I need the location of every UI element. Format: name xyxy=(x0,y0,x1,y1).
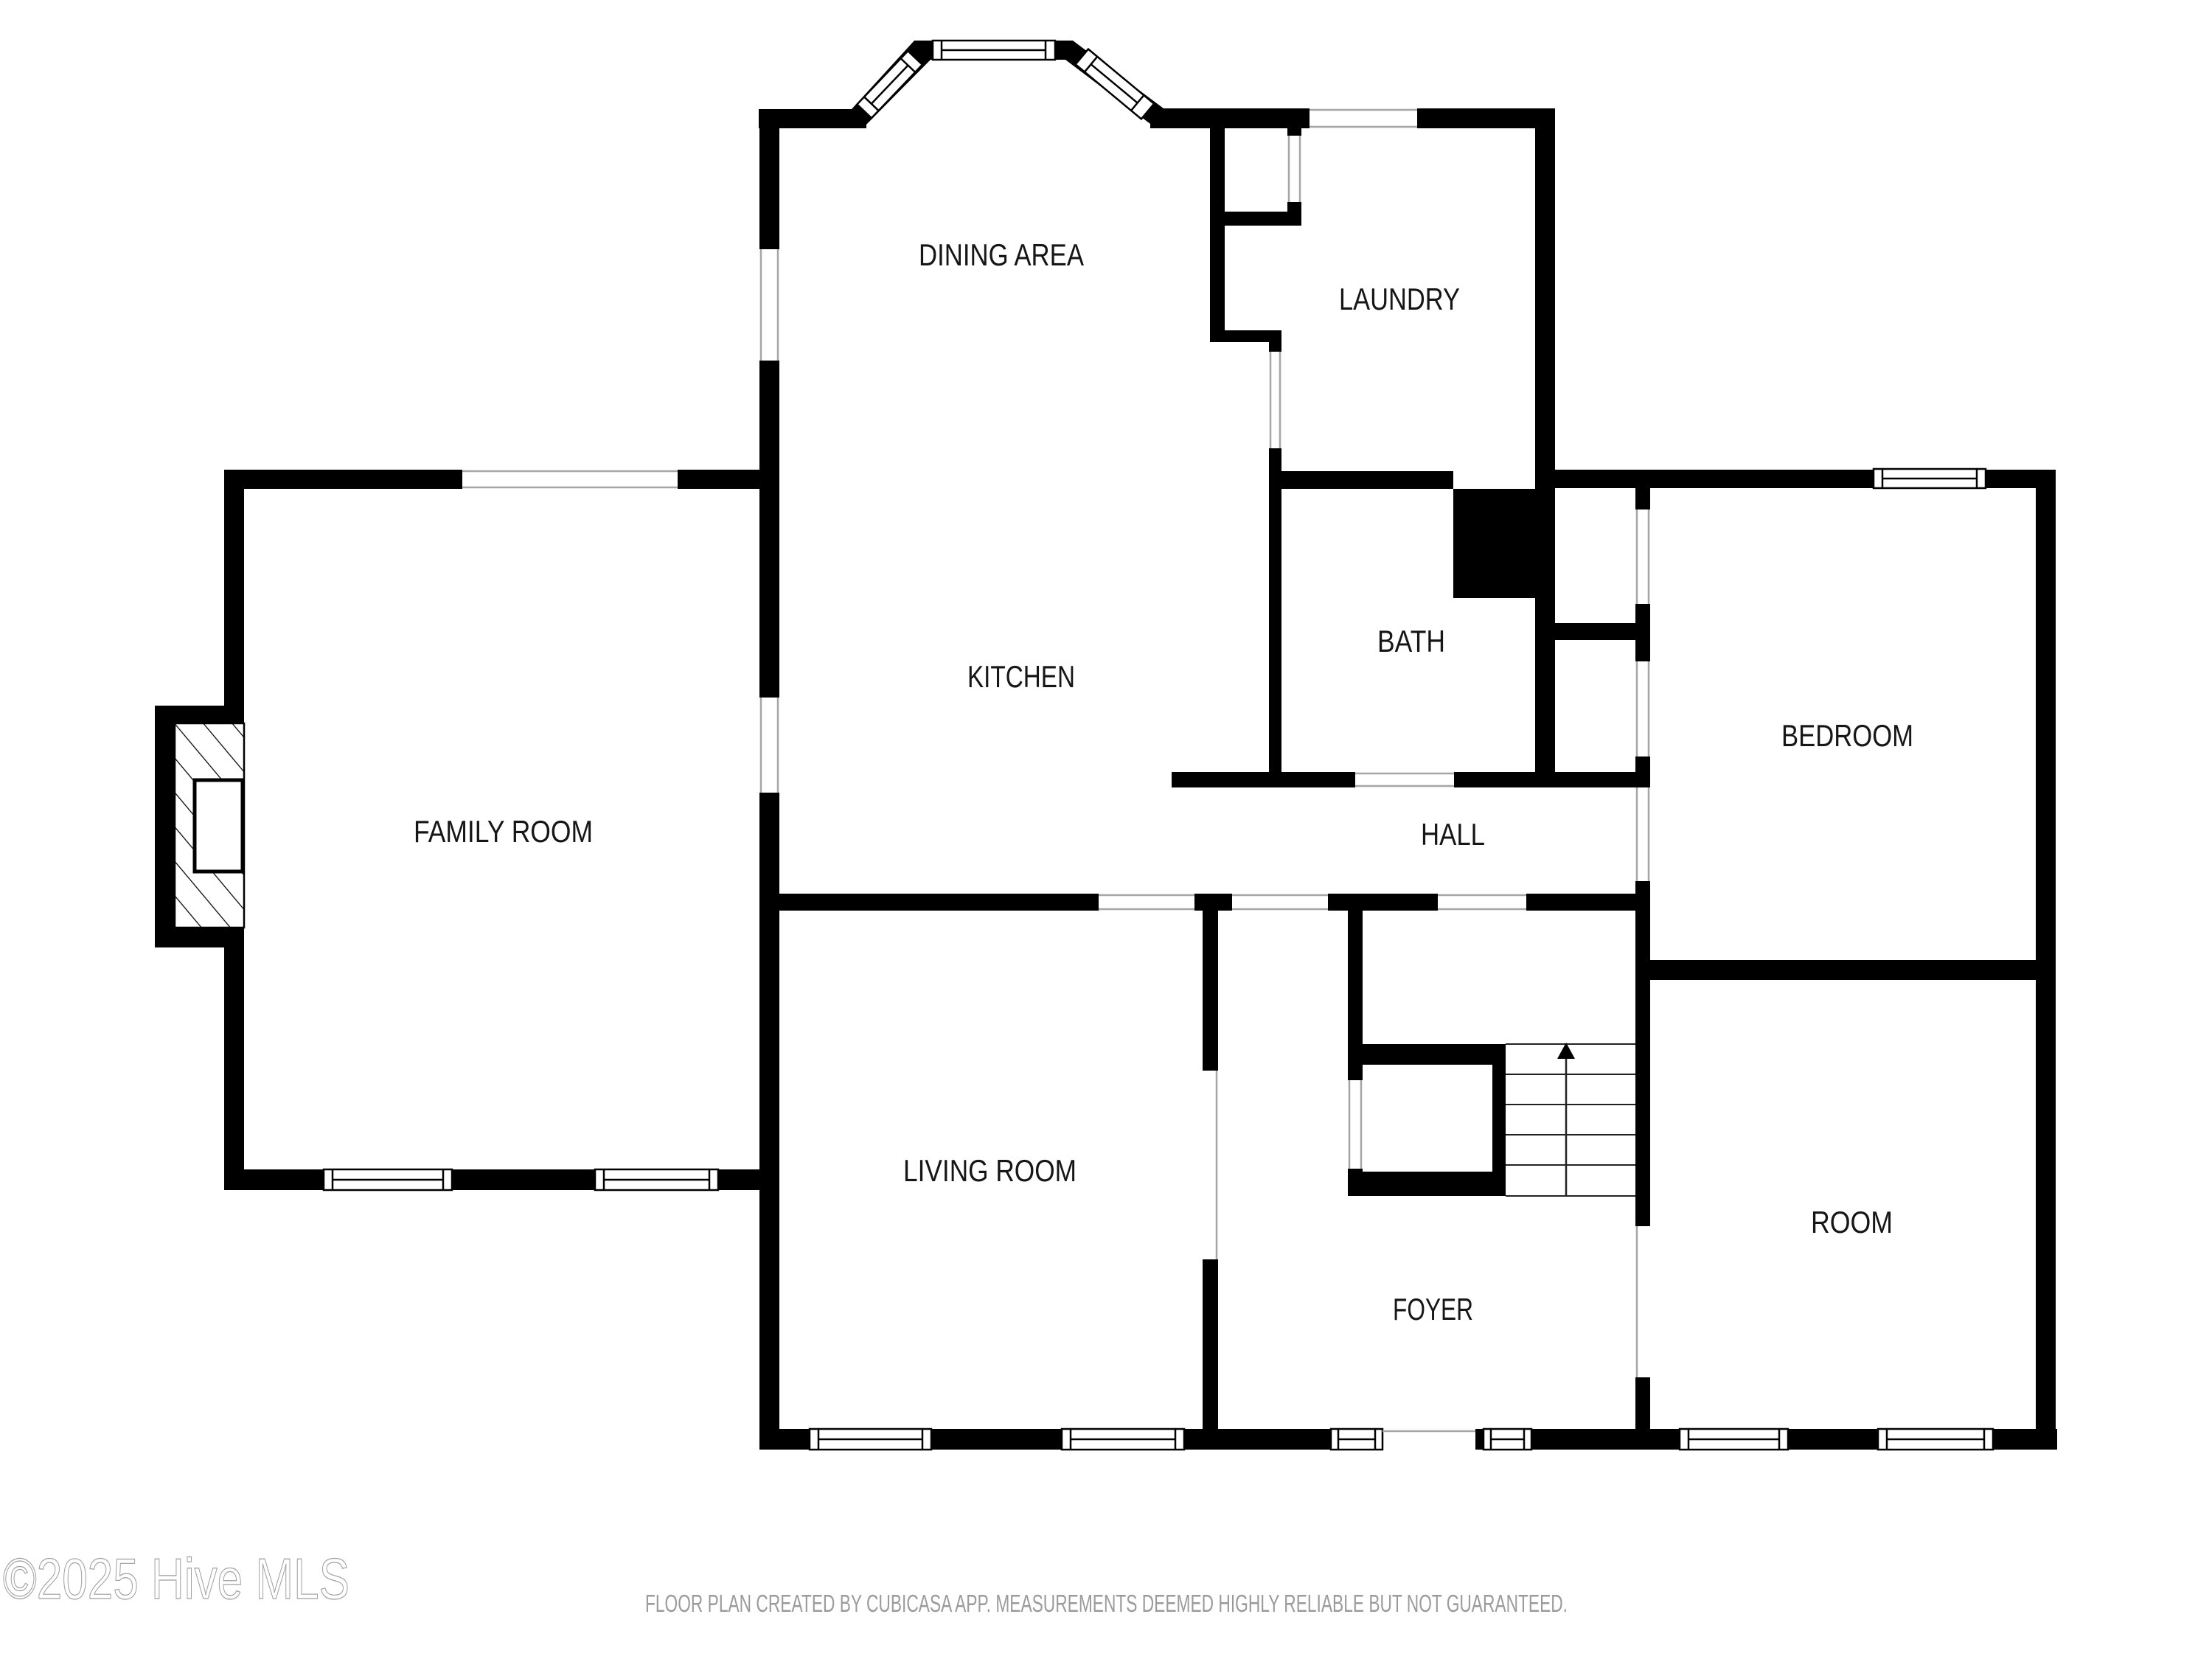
svg-text:BATH: BATH xyxy=(1377,624,1445,658)
svg-text:LIVING ROOM: LIVING ROOM xyxy=(903,1153,1077,1188)
svg-text:BEDROOM: BEDROOM xyxy=(1781,718,1913,753)
svg-text:KITCHEN: KITCHEN xyxy=(967,659,1075,694)
svg-text:FOYER: FOYER xyxy=(1393,1292,1473,1326)
svg-text:LAUNDRY: LAUNDRY xyxy=(1339,282,1460,316)
svg-text:FAMILY ROOM: FAMILY ROOM xyxy=(414,814,593,849)
svg-text:DINING AREA: DINING AREA xyxy=(919,237,1084,272)
svg-text:HALL: HALL xyxy=(1421,817,1485,852)
svg-text:©2025 Hive MLS: ©2025 Hive MLS xyxy=(3,1546,349,1611)
svg-text:ROOM: ROOM xyxy=(1811,1205,1893,1239)
svg-text:FLOOR PLAN CREATED BY CUBICASA: FLOOR PLAN CREATED BY CUBICASA APP. MEAS… xyxy=(645,1590,1568,1617)
